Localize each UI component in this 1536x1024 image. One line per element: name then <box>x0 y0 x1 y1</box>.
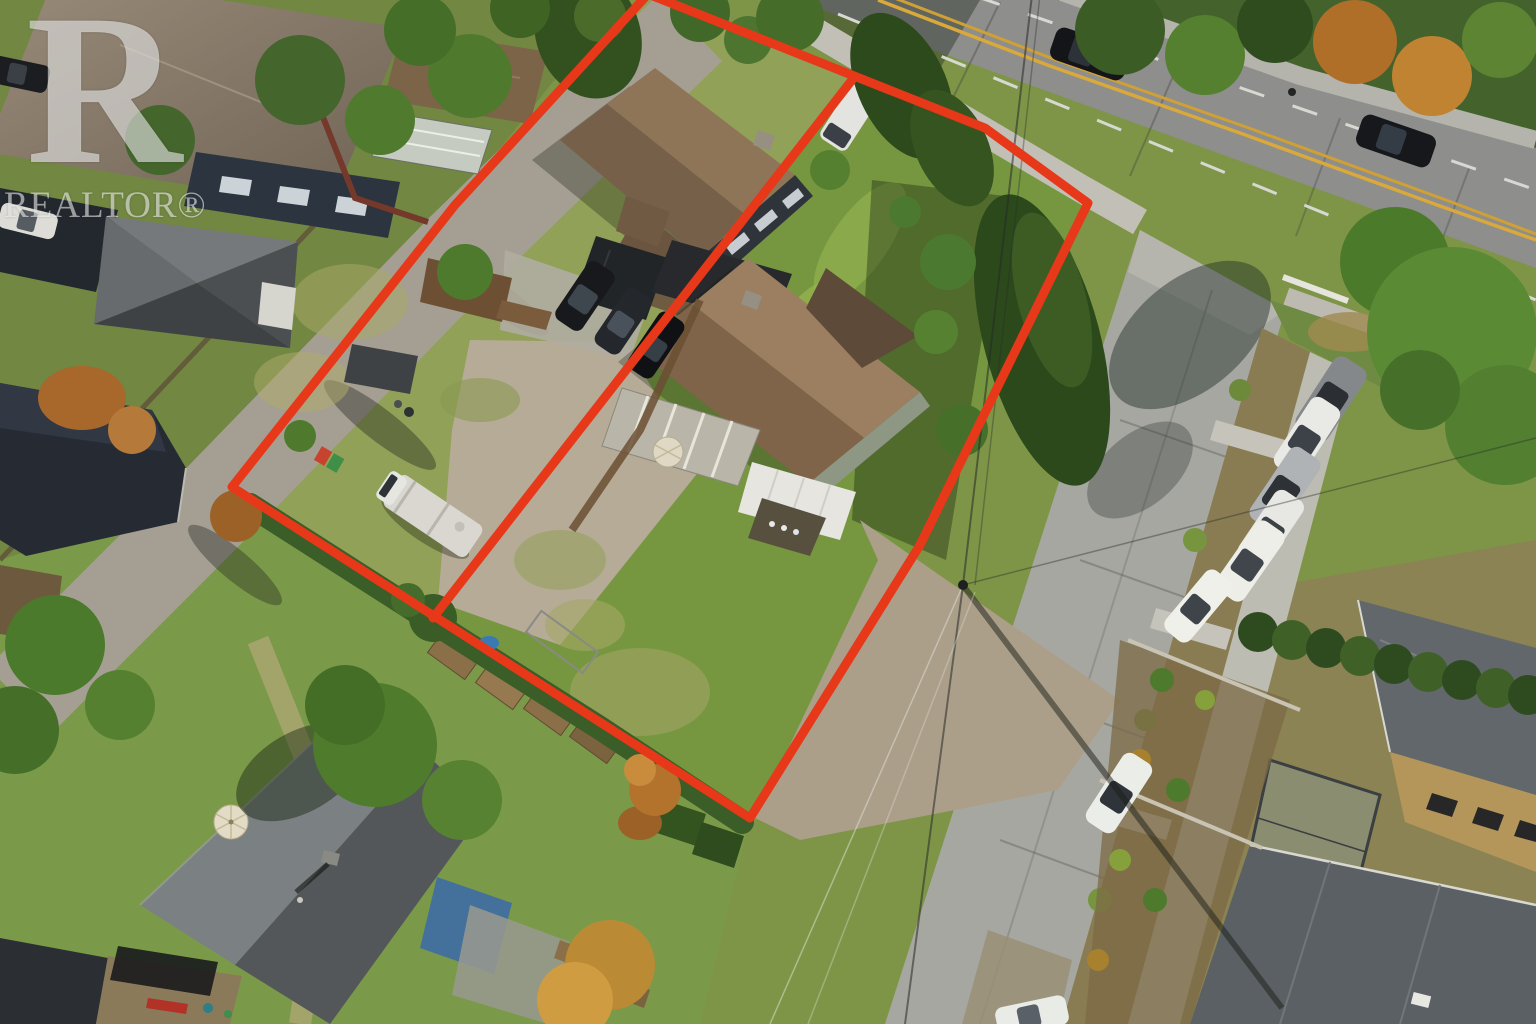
boulevard-shrub <box>1229 379 1251 401</box>
leafy-tree <box>345 85 415 155</box>
utility-pole <box>958 580 968 590</box>
utility-pole <box>1288 88 1296 96</box>
yard-tree <box>437 244 493 300</box>
laundry-item <box>781 525 787 531</box>
trash-bin <box>404 407 414 417</box>
shrub <box>810 150 850 190</box>
weed-patch <box>514 530 606 590</box>
patio-item <box>203 1003 213 1013</box>
aerial-photo: R REALTOR® <box>0 0 1536 1024</box>
landscape-shrub <box>1195 690 1215 710</box>
scene-canvas <box>0 0 1536 1024</box>
roadside-tree <box>1165 15 1245 95</box>
leafy-tree <box>5 595 105 695</box>
leafy-tree <box>255 35 345 125</box>
garage-door <box>258 282 296 330</box>
weed-patch <box>440 378 520 422</box>
cedar <box>1238 612 1278 652</box>
autumn-tree <box>1392 36 1472 116</box>
dry-lawn-patch <box>292 264 408 340</box>
boulevard-shrub <box>1183 528 1207 552</box>
cedar <box>1374 644 1414 684</box>
laundry-item <box>793 529 799 535</box>
patio-umbrella-house-b <box>653 437 683 467</box>
shrub <box>889 196 921 228</box>
cedar <box>1408 652 1448 692</box>
roadside-tree <box>1462 2 1536 78</box>
landscape-shrub <box>1143 888 1167 912</box>
landscape-shrub <box>1109 849 1131 871</box>
landscape-shrub <box>1166 778 1190 802</box>
cedar <box>1442 660 1482 700</box>
cedar <box>1340 636 1380 676</box>
garden-tree <box>305 665 385 745</box>
shrub <box>920 234 976 290</box>
leafy-tree <box>85 670 155 740</box>
autumn-bush <box>108 406 156 454</box>
shrub <box>914 310 958 354</box>
landscape-shrub <box>1087 949 1109 971</box>
shrub <box>284 420 316 452</box>
cedar <box>1272 620 1312 660</box>
roof-vent <box>297 897 303 903</box>
autumn-tree <box>1313 0 1397 84</box>
laundry-item <box>769 521 775 527</box>
landscape-shrub <box>1150 668 1174 692</box>
cedar <box>1306 628 1346 668</box>
umbrella-pole <box>229 820 234 825</box>
patio-item <box>224 1010 232 1018</box>
corner-tree <box>1380 350 1460 430</box>
leafy-tree <box>125 105 195 175</box>
garden-tree <box>422 760 502 840</box>
trash-bin <box>394 400 402 408</box>
